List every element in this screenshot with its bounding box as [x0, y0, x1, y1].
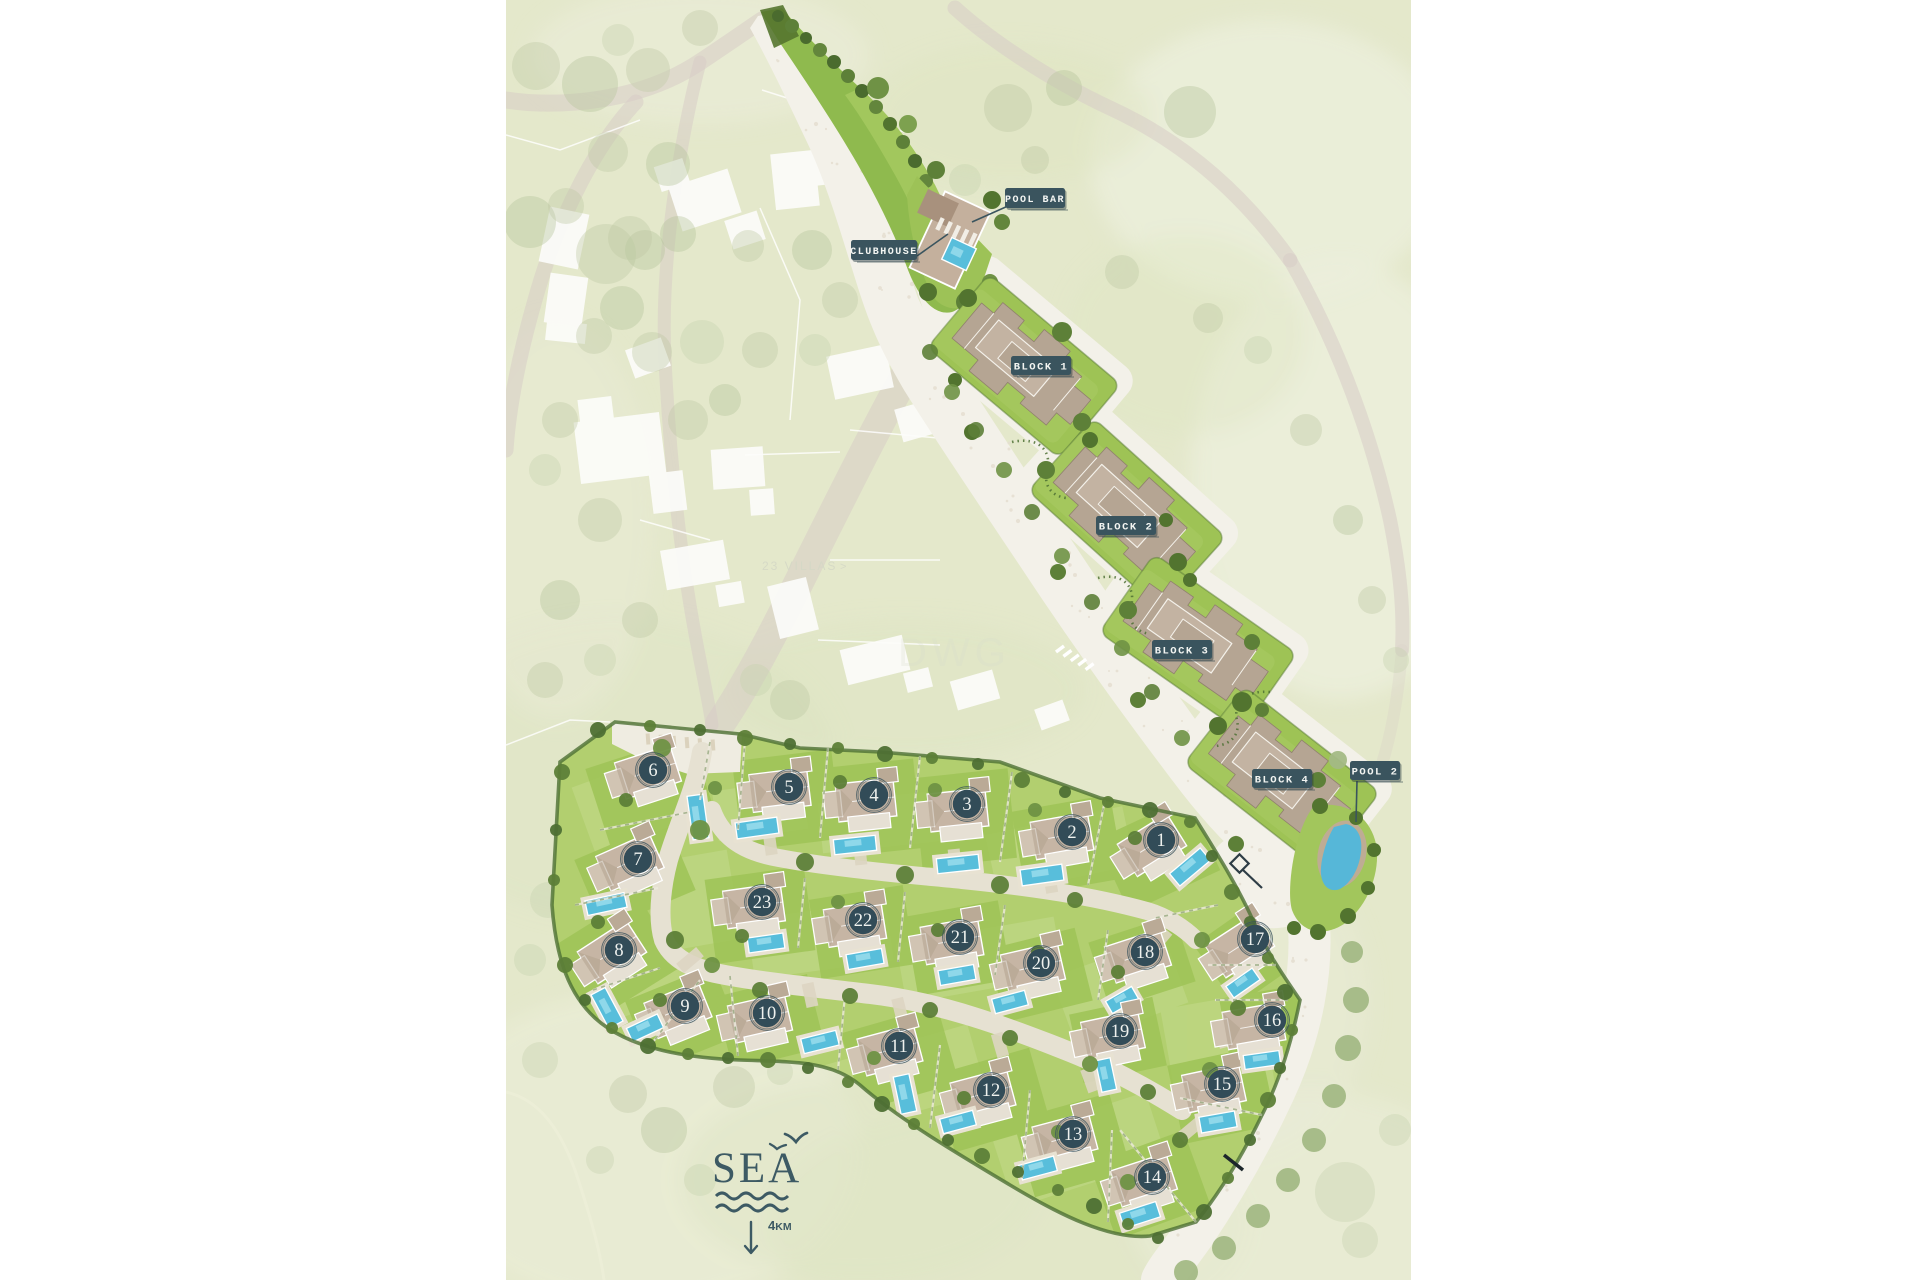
- svg-text:23 VILLAS: 23 VILLAS: [762, 559, 837, 573]
- svg-text:18: 18: [1136, 943, 1155, 963]
- svg-text:6: 6: [648, 761, 657, 781]
- svg-text:14: 14: [1143, 1168, 1162, 1188]
- svg-text:10: 10: [758, 1004, 777, 1024]
- svg-text:5: 5: [784, 778, 793, 798]
- svg-text:BLOCK 3: BLOCK 3: [1155, 645, 1210, 657]
- svg-text:16: 16: [1263, 1011, 1282, 1031]
- svg-text:3: 3: [962, 795, 971, 815]
- svg-text:15: 15: [1213, 1075, 1232, 1095]
- svg-text:CLUBHOUSE: CLUBHOUSE: [850, 247, 918, 258]
- svg-text:7: 7: [633, 850, 642, 870]
- svg-text:POOL 2: POOL 2: [1352, 766, 1399, 778]
- svg-text:17: 17: [1246, 930, 1265, 950]
- svg-text:BLOCK 4: BLOCK 4: [1255, 774, 1310, 786]
- svg-text:21: 21: [951, 928, 970, 948]
- svg-text:4: 4: [869, 786, 878, 806]
- svg-text:BLOCK 1: BLOCK 1: [1014, 361, 1069, 373]
- svg-text:8: 8: [614, 941, 623, 961]
- svg-text:19: 19: [1111, 1022, 1130, 1042]
- svg-text:9: 9: [680, 997, 689, 1017]
- svg-text:DWG: DWG: [898, 631, 1011, 675]
- svg-text:20: 20: [1032, 954, 1051, 974]
- svg-text:13: 13: [1064, 1125, 1083, 1145]
- svg-text:BLOCK 2: BLOCK 2: [1099, 521, 1154, 533]
- svg-text:POOL BAR: POOL BAR: [1005, 195, 1065, 206]
- svg-text:4KM: 4KM: [768, 1218, 792, 1233]
- svg-text:2: 2: [1067, 823, 1076, 843]
- svg-text:1: 1: [1156, 831, 1165, 851]
- svg-text:23: 23: [753, 893, 772, 913]
- svg-text:SEA: SEA: [712, 1145, 802, 1192]
- svg-text:11: 11: [890, 1037, 908, 1057]
- svg-text:22: 22: [854, 911, 873, 931]
- svg-text:12: 12: [982, 1081, 1001, 1101]
- svg-text:>: >: [840, 561, 846, 573]
